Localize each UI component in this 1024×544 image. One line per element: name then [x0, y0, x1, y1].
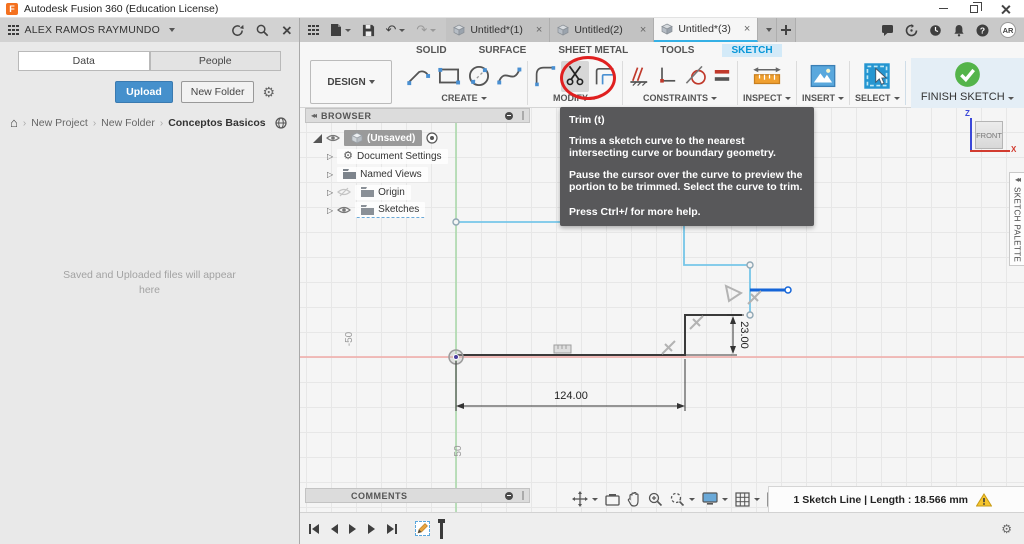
dimension-width-value[interactable]: 124.00 [554, 390, 588, 402]
group-inspect: INSPECT [743, 58, 791, 103]
minimize-icon[interactable] [939, 8, 948, 10]
breadcrumb: ⌂ › New Project › New Folder › Conceptos… [10, 117, 291, 129]
notifications-bell-icon[interactable] [953, 24, 965, 37]
select-label[interactable]: SELECT [855, 93, 891, 103]
panel-menu-icon[interactable] [505, 112, 513, 120]
breadcrumb-current[interactable]: Conceptos Basicos [168, 117, 265, 129]
browser-item-document-settings[interactable]: ▷ ⚙Document Settings [313, 147, 530, 165]
viewcube-z-axis-label: Z [965, 109, 970, 118]
title-bar: F Autodesk Fusion 360 (Education License… [0, 0, 1024, 18]
panel-grip[interactable] [522, 111, 524, 120]
workspace-selector[interactable]: DESIGN [310, 60, 392, 104]
browser-root-row[interactable]: (Unsaved) [313, 129, 530, 147]
breadcrumb-separator: › [160, 118, 163, 129]
tangent-constraint-icon[interactable] [684, 64, 708, 88]
empty-state-text: Saved and Uploaded files will appear her… [0, 268, 299, 298]
browser-item-label: Origin [378, 187, 405, 198]
cube-icon [453, 24, 465, 36]
new-file-button[interactable] [330, 23, 351, 37]
rectangle-tool-icon[interactable] [436, 63, 462, 89]
orbit-tool[interactable] [572, 491, 598, 507]
browser-item-label: Sketches [378, 204, 419, 215]
cube-icon [661, 23, 673, 35]
data-panel-header: ALEX RAMOS RAYMUNDO [0, 18, 299, 42]
group-create: CREATE [406, 58, 522, 103]
eye-icon[interactable] [326, 133, 340, 143]
sketch-palette-tab[interactable]: ◂◂ SKETCH PALETTE [1009, 172, 1024, 266]
folder-icon [361, 205, 374, 215]
close-tab-icon[interactable]: × [640, 24, 646, 36]
status-bar: 1 Sketch Line | Length : 18.566 mm [768, 486, 1024, 512]
tooltip-footer: Press Ctrl+/ for more help. [569, 206, 805, 219]
close-panel-icon[interactable] [282, 26, 291, 35]
tab-solid[interactable]: SOLID [412, 44, 451, 57]
viewcube-x-axis-label: X [1011, 145, 1016, 154]
breadcrumb-separator: › [23, 118, 26, 129]
group-insert: INSERT [802, 58, 844, 103]
doc-tab-label: Untitled*(1) [470, 24, 523, 36]
sketch-point[interactable] [453, 219, 459, 225]
browser-header[interactable]: ◂◂ BROWSER [305, 108, 530, 123]
tooltip-body: Pause the cursor over the curve to previ… [569, 169, 805, 194]
tab-sheet-metal[interactable]: SHEET METAL [554, 44, 632, 57]
data-people-tabs: Data People [18, 51, 281, 71]
sketch-feature-icon [417, 523, 428, 534]
grid-snap-tool[interactable] [735, 492, 760, 507]
fusion360-window: F Autodesk Fusion 360 (Education License… [0, 0, 1024, 544]
tab-data[interactable]: Data [18, 51, 150, 71]
dimension-height-value[interactable]: 23.00 [738, 321, 750, 349]
sketch-line-blue[interactable] [456, 222, 750, 265]
expand-palette-icon[interactable]: ◂◂ [1015, 176, 1019, 184]
look-at-icon[interactable] [605, 493, 620, 506]
tab-sketch[interactable]: SKETCH [722, 44, 781, 57]
ribbon: SOLID SURFACE SHEET METAL TOOLS SKETCH D… [300, 42, 1024, 108]
measure-tool-icon[interactable] [752, 63, 782, 89]
expand-caret-icon[interactable]: ▷ [327, 188, 333, 197]
doc-tab-label: Untitled*(3) [678, 23, 731, 35]
navigation-toolbar [572, 489, 792, 509]
timeline-sketch-feature[interactable] [415, 521, 430, 536]
timeline-marker[interactable] [440, 519, 443, 539]
viewcube-z-axis [970, 118, 972, 152]
sketch-point[interactable] [747, 262, 753, 268]
timeline-bar: ⚙ [300, 512, 1024, 544]
display-icon [702, 492, 718, 506]
browser-root-label: (Unsaved) [367, 133, 415, 144]
selection-status-text: 1 Sketch Line | Length : 18.566 mm [794, 494, 969, 506]
selected-sketch-point[interactable] [785, 287, 791, 293]
orbit-icon [572, 491, 588, 507]
tab-people[interactable]: People [150, 51, 282, 71]
warning-icon[interactable] [976, 493, 992, 507]
tab-surface[interactable]: SURFACE [475, 44, 531, 57]
globe-icon[interactable] [275, 117, 287, 129]
constraints-label[interactable]: CONSTRAINTS [643, 93, 708, 103]
expand-caret-icon[interactable]: ▷ [327, 152, 333, 161]
pan-hand-icon[interactable] [627, 492, 641, 507]
close-tab-icon[interactable]: × [744, 23, 750, 35]
equal-constraint-icon[interactable] [712, 64, 732, 88]
viewcube-x-axis [970, 150, 1010, 152]
timeline-go-to-start-icon[interactable] [308, 523, 320, 535]
expand-caret-icon[interactable]: ▷ [327, 206, 333, 215]
home-icon[interactable]: ⌂ [10, 118, 18, 128]
panel-menu-icon[interactable] [505, 492, 513, 500]
new-folder-button[interactable]: New Folder [181, 81, 255, 103]
app-grid-icon[interactable] [8, 25, 19, 36]
expand-caret-icon[interactable]: ▷ [327, 170, 333, 179]
timeline-step-back-icon[interactable] [329, 523, 339, 535]
close-icon[interactable] [1000, 4, 1010, 14]
team-name[interactable]: ALEX RAMOS RAYMUNDO [25, 24, 160, 36]
zoom-icon[interactable] [648, 492, 663, 507]
timeline-step-forward-icon[interactable] [367, 523, 377, 535]
finish-check-icon [954, 61, 981, 88]
cube-icon [557, 24, 569, 36]
folder-icon [343, 169, 356, 179]
environment-tabs: SOLID SURFACE SHEET METAL TOOLS SKETCH [300, 42, 1024, 58]
eye-icon[interactable] [337, 205, 351, 215]
browser-item-named-views[interactable]: ▷ Named Views [313, 165, 530, 183]
display-settings-tool[interactable] [702, 492, 728, 506]
tab-list-chevron-button[interactable] [758, 18, 777, 42]
restore-icon[interactable] [970, 5, 978, 13]
browser-title: BROWSER [321, 111, 372, 121]
origin-point-center [454, 355, 459, 360]
viewcube-front-face[interactable]: FRONT [975, 121, 1003, 149]
new-tab-button[interactable] [777, 18, 796, 42]
doc-tab-untitled3[interactable]: Untitled*(3) × [654, 18, 758, 42]
expand-triangle-icon[interactable] [313, 134, 322, 143]
breadcrumb-separator: › [93, 118, 96, 129]
annotation-circle [560, 56, 616, 100]
zoom-window-tool[interactable] [670, 492, 695, 507]
trim-tooltip: Trim (t) Trims a sketch curve to the nea… [560, 107, 814, 226]
grid-icon [735, 492, 750, 507]
main-area: ↶ ↷ Untitled*(1) × Untitled(2) × Untitle… [300, 18, 1024, 544]
group-constraints: CONSTRAINTS [628, 58, 732, 103]
browser-panel: ◂◂ BROWSER (Unsaved) [305, 108, 530, 219]
timeline-settings-gear-icon[interactable]: ⚙ [1001, 523, 1012, 535]
search-icon[interactable] [256, 24, 269, 37]
data-settings-gear-icon[interactable]: ⚙ [262, 85, 275, 99]
fusion-logo-icon: F [6, 3, 18, 15]
inspect-label[interactable]: INSPECT [743, 93, 782, 103]
upload-button[interactable]: Upload [115, 81, 173, 103]
fillet-tool-icon[interactable] [533, 64, 557, 88]
data-panel: ALEX RAMOS RAYMUNDO Data People Upload N… [0, 18, 300, 544]
save-icon[interactable] [362, 24, 375, 37]
svg-text:?: ? [980, 25, 985, 35]
feedback-icon[interactable] [881, 24, 894, 37]
comments-title: COMMENTS [351, 491, 408, 501]
collapse-panel-icon[interactable]: ◂◂ [311, 112, 315, 120]
browser-item-sketches[interactable]: ▷ Sketches [313, 201, 530, 219]
workspace-label: DESIGN [327, 77, 365, 88]
history-clock-icon[interactable] [929, 24, 942, 37]
avatar[interactable]: AR [1000, 22, 1016, 38]
job-status-icon[interactable] [905, 24, 918, 37]
sketch-point[interactable] [747, 312, 753, 318]
create-label[interactable]: CREATE [441, 93, 477, 103]
doc-tab-untitled2[interactable]: Untitled(2) × [550, 18, 654, 42]
doc-tab-untitled1[interactable]: Untitled*(1) × [446, 18, 550, 42]
doc-tab-label: Untitled(2) [574, 24, 622, 36]
chevron-down-icon [169, 28, 175, 32]
zoom-window-icon [670, 492, 685, 507]
select-tool-icon[interactable] [863, 62, 891, 90]
dimension-glyph [554, 345, 571, 353]
horizontal-vertical-constraint-icon[interactable] [656, 64, 680, 88]
insert-label[interactable]: INSERT [802, 93, 835, 103]
browser-item-label: Named Views [360, 169, 422, 180]
grid-label-neg50: -50 [344, 331, 355, 346]
fix-constraint-icon[interactable] [628, 64, 652, 88]
folder-icon [361, 187, 374, 197]
document-tab-bar: ↶ ↷ Untitled*(1) × Untitled(2) × Untitle… [300, 18, 1024, 42]
show-data-panel-icon[interactable] [308, 25, 319, 36]
help-icon[interactable]: ? [976, 24, 989, 37]
redo-button[interactable]: ↷ [416, 25, 436, 35]
circle-tool-icon[interactable] [466, 63, 492, 89]
timeline-play-icon[interactable] [348, 523, 358, 535]
tooltip-body: Trims a sketch curve to the nearest inte… [569, 135, 805, 160]
comments-panel[interactable]: COMMENTS [305, 488, 530, 503]
viewcube[interactable]: Z FRONT X [955, 108, 1024, 168]
window-title: Autodesk Fusion 360 (Education License) [24, 3, 218, 15]
spline-tool-icon[interactable] [496, 63, 522, 89]
sketch-palette-label: SKETCH PALETTE [1013, 187, 1022, 262]
group-select: SELECT [855, 58, 900, 103]
cube-icon [351, 132, 363, 144]
tab-tools[interactable]: TOOLS [656, 44, 698, 57]
refresh-icon[interactable] [231, 24, 244, 37]
panel-grip[interactable] [522, 491, 524, 500]
radio-target-icon[interactable] [426, 132, 438, 144]
grid-label-50: 50 [453, 445, 464, 457]
browser-item-origin[interactable]: ▷ Origin [313, 183, 530, 201]
browser-item-label: Document Settings [357, 151, 442, 162]
undo-button[interactable]: ↶ [386, 25, 406, 35]
breadcrumb-project[interactable]: New Project [31, 117, 88, 129]
close-tab-icon[interactable]: × [536, 24, 542, 36]
finish-sketch-label: FINISH SKETCH [921, 91, 1005, 103]
timeline-go-to-end-icon[interactable] [386, 523, 398, 535]
eye-slash-icon[interactable] [337, 187, 351, 197]
line-tool-icon[interactable] [406, 63, 432, 89]
breadcrumb-folder[interactable]: New Folder [101, 117, 155, 129]
tooltip-title: Trim (t) [569, 114, 805, 127]
finish-sketch-button[interactable]: FINISH SKETCH [911, 58, 1024, 108]
dimension-width[interactable] [456, 359, 685, 411]
insert-image-icon[interactable] [810, 63, 836, 89]
